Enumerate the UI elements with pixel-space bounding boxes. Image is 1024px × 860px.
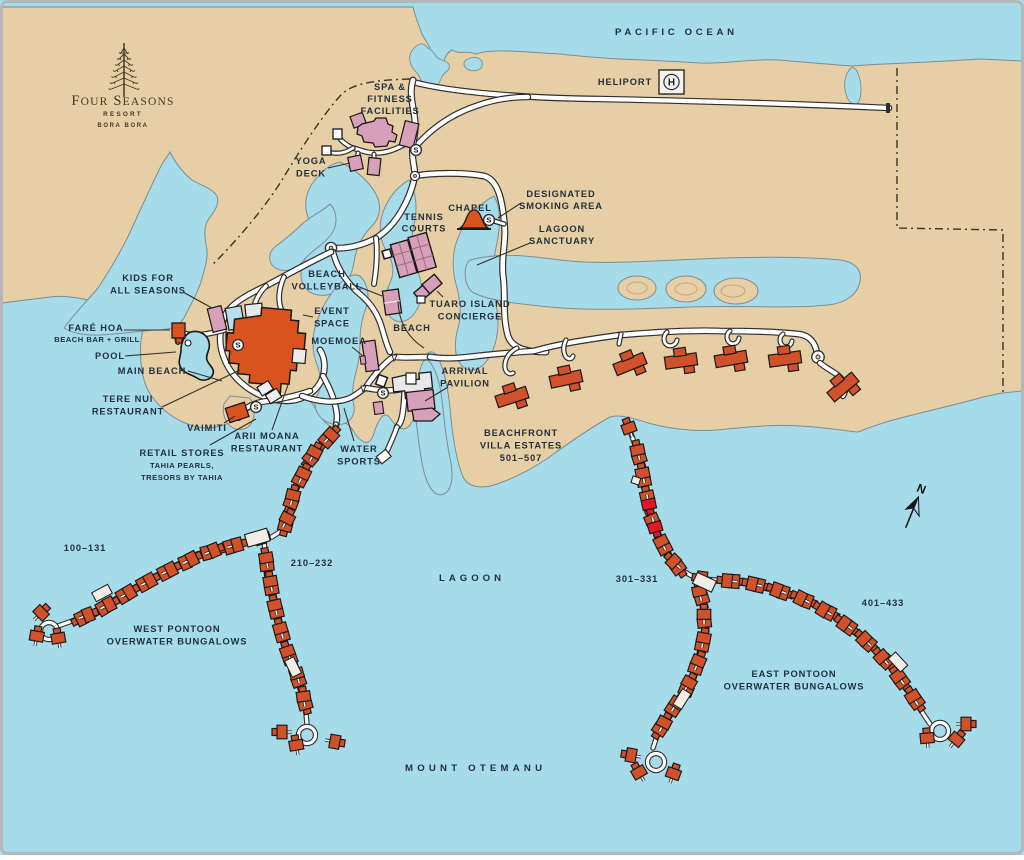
- svg-text:SANCTUARY: SANCTUARY: [529, 236, 595, 246]
- svg-text:RESTAURANT: RESTAURANT: [231, 444, 303, 454]
- svg-text:TUARO ISLAND: TUARO ISLAND: [429, 299, 510, 309]
- svg-text:S: S: [253, 403, 258, 412]
- svg-text:FARÉ HOA: FARÉ HOA: [68, 323, 123, 333]
- svg-text:TERE NUI: TERE NUI: [103, 394, 154, 404]
- svg-text:H: H: [668, 77, 675, 88]
- svg-text:HELIPORT: HELIPORT: [598, 77, 652, 87]
- svg-text:S: S: [380, 389, 385, 398]
- svg-text:VOLLEYBALL: VOLLEYBALL: [292, 282, 363, 292]
- svg-text:CHAPEL: CHAPEL: [448, 203, 492, 213]
- svg-text:S: S: [235, 341, 240, 350]
- svg-text:501–507: 501–507: [500, 453, 543, 463]
- svg-text:CONCIERGE: CONCIERGE: [438, 312, 502, 322]
- svg-text:301–331: 301–331: [616, 574, 659, 584]
- svg-text:DECK: DECK: [296, 169, 326, 179]
- svg-text:100–131: 100–131: [64, 543, 107, 553]
- svg-text:BEACH: BEACH: [393, 323, 431, 333]
- svg-text:WATER: WATER: [340, 444, 377, 454]
- svg-text:MOUNT OTEMANU: MOUNT OTEMANU: [405, 763, 545, 774]
- svg-text:OVERWATER BUNGALOWS: OVERWATER BUNGALOWS: [107, 637, 248, 647]
- svg-text:BEACH: BEACH: [308, 269, 346, 279]
- svg-text:FOUR SEASONS: FOUR SEASONS: [71, 93, 174, 109]
- svg-text:S: S: [413, 146, 418, 155]
- svg-text:SPORTS: SPORTS: [337, 457, 381, 467]
- svg-text:BEACH BAR + GRILL: BEACH BAR + GRILL: [54, 335, 140, 344]
- svg-text:EAST PONTOON: EAST PONTOON: [751, 669, 836, 679]
- svg-text:FACILITIES: FACILITIES: [360, 106, 419, 116]
- svg-text:OVERWATER BUNGALOWS: OVERWATER BUNGALOWS: [724, 682, 865, 692]
- svg-text:LAGOON: LAGOON: [539, 224, 585, 234]
- svg-text:PAVILION: PAVILION: [440, 379, 490, 389]
- svg-text:ARRIVAL: ARRIVAL: [442, 366, 489, 376]
- svg-text:LAGOON: LAGOON: [439, 573, 505, 584]
- svg-text:SPA &: SPA &: [374, 82, 406, 92]
- svg-text:PACIFIC OCEAN: PACIFIC OCEAN: [615, 27, 737, 38]
- svg-text:RESTAURANT: RESTAURANT: [92, 407, 164, 417]
- svg-text:210–232: 210–232: [291, 558, 334, 568]
- svg-text:YOGA: YOGA: [296, 156, 327, 166]
- svg-text:VILLA ESTATES: VILLA ESTATES: [480, 441, 562, 451]
- svg-text:MAIN BEACH: MAIN BEACH: [118, 366, 186, 376]
- svg-text:DESIGNATED: DESIGNATED: [526, 189, 595, 199]
- svg-text:EVENT: EVENT: [314, 306, 350, 316]
- svg-text:TENNIS: TENNIS: [404, 212, 444, 222]
- svg-text:ARII MOANA: ARII MOANA: [234, 431, 299, 441]
- svg-text:BEACHFRONT: BEACHFRONT: [484, 428, 558, 438]
- svg-text:TRESORS BY TAHIA: TRESORS BY TAHIA: [141, 473, 223, 482]
- svg-text:POOL: POOL: [95, 351, 125, 361]
- svg-text:TAHIA PEARLS,: TAHIA PEARLS,: [150, 461, 214, 470]
- svg-text:RETAIL STORES: RETAIL STORES: [139, 448, 224, 458]
- svg-text:FITNESS: FITNESS: [367, 94, 413, 104]
- svg-text:ALL SEASONS: ALL SEASONS: [110, 286, 186, 296]
- svg-text:SPACE: SPACE: [314, 319, 350, 329]
- svg-text:BORA BORA: BORA BORA: [97, 123, 148, 129]
- svg-text:COURTS: COURTS: [402, 224, 447, 234]
- svg-text:VAIMITI: VAIMITI: [187, 423, 227, 433]
- svg-text:401–433: 401–433: [862, 598, 905, 608]
- svg-text:MOEMOEA: MOEMOEA: [311, 336, 366, 346]
- svg-text:RESORT: RESORT: [103, 111, 143, 118]
- svg-text:KIDS FOR: KIDS FOR: [122, 273, 174, 283]
- svg-text:S: S: [486, 216, 491, 225]
- svg-text:WEST PONTOON: WEST PONTOON: [133, 624, 220, 634]
- svg-text:SMOKING AREA: SMOKING AREA: [519, 201, 603, 211]
